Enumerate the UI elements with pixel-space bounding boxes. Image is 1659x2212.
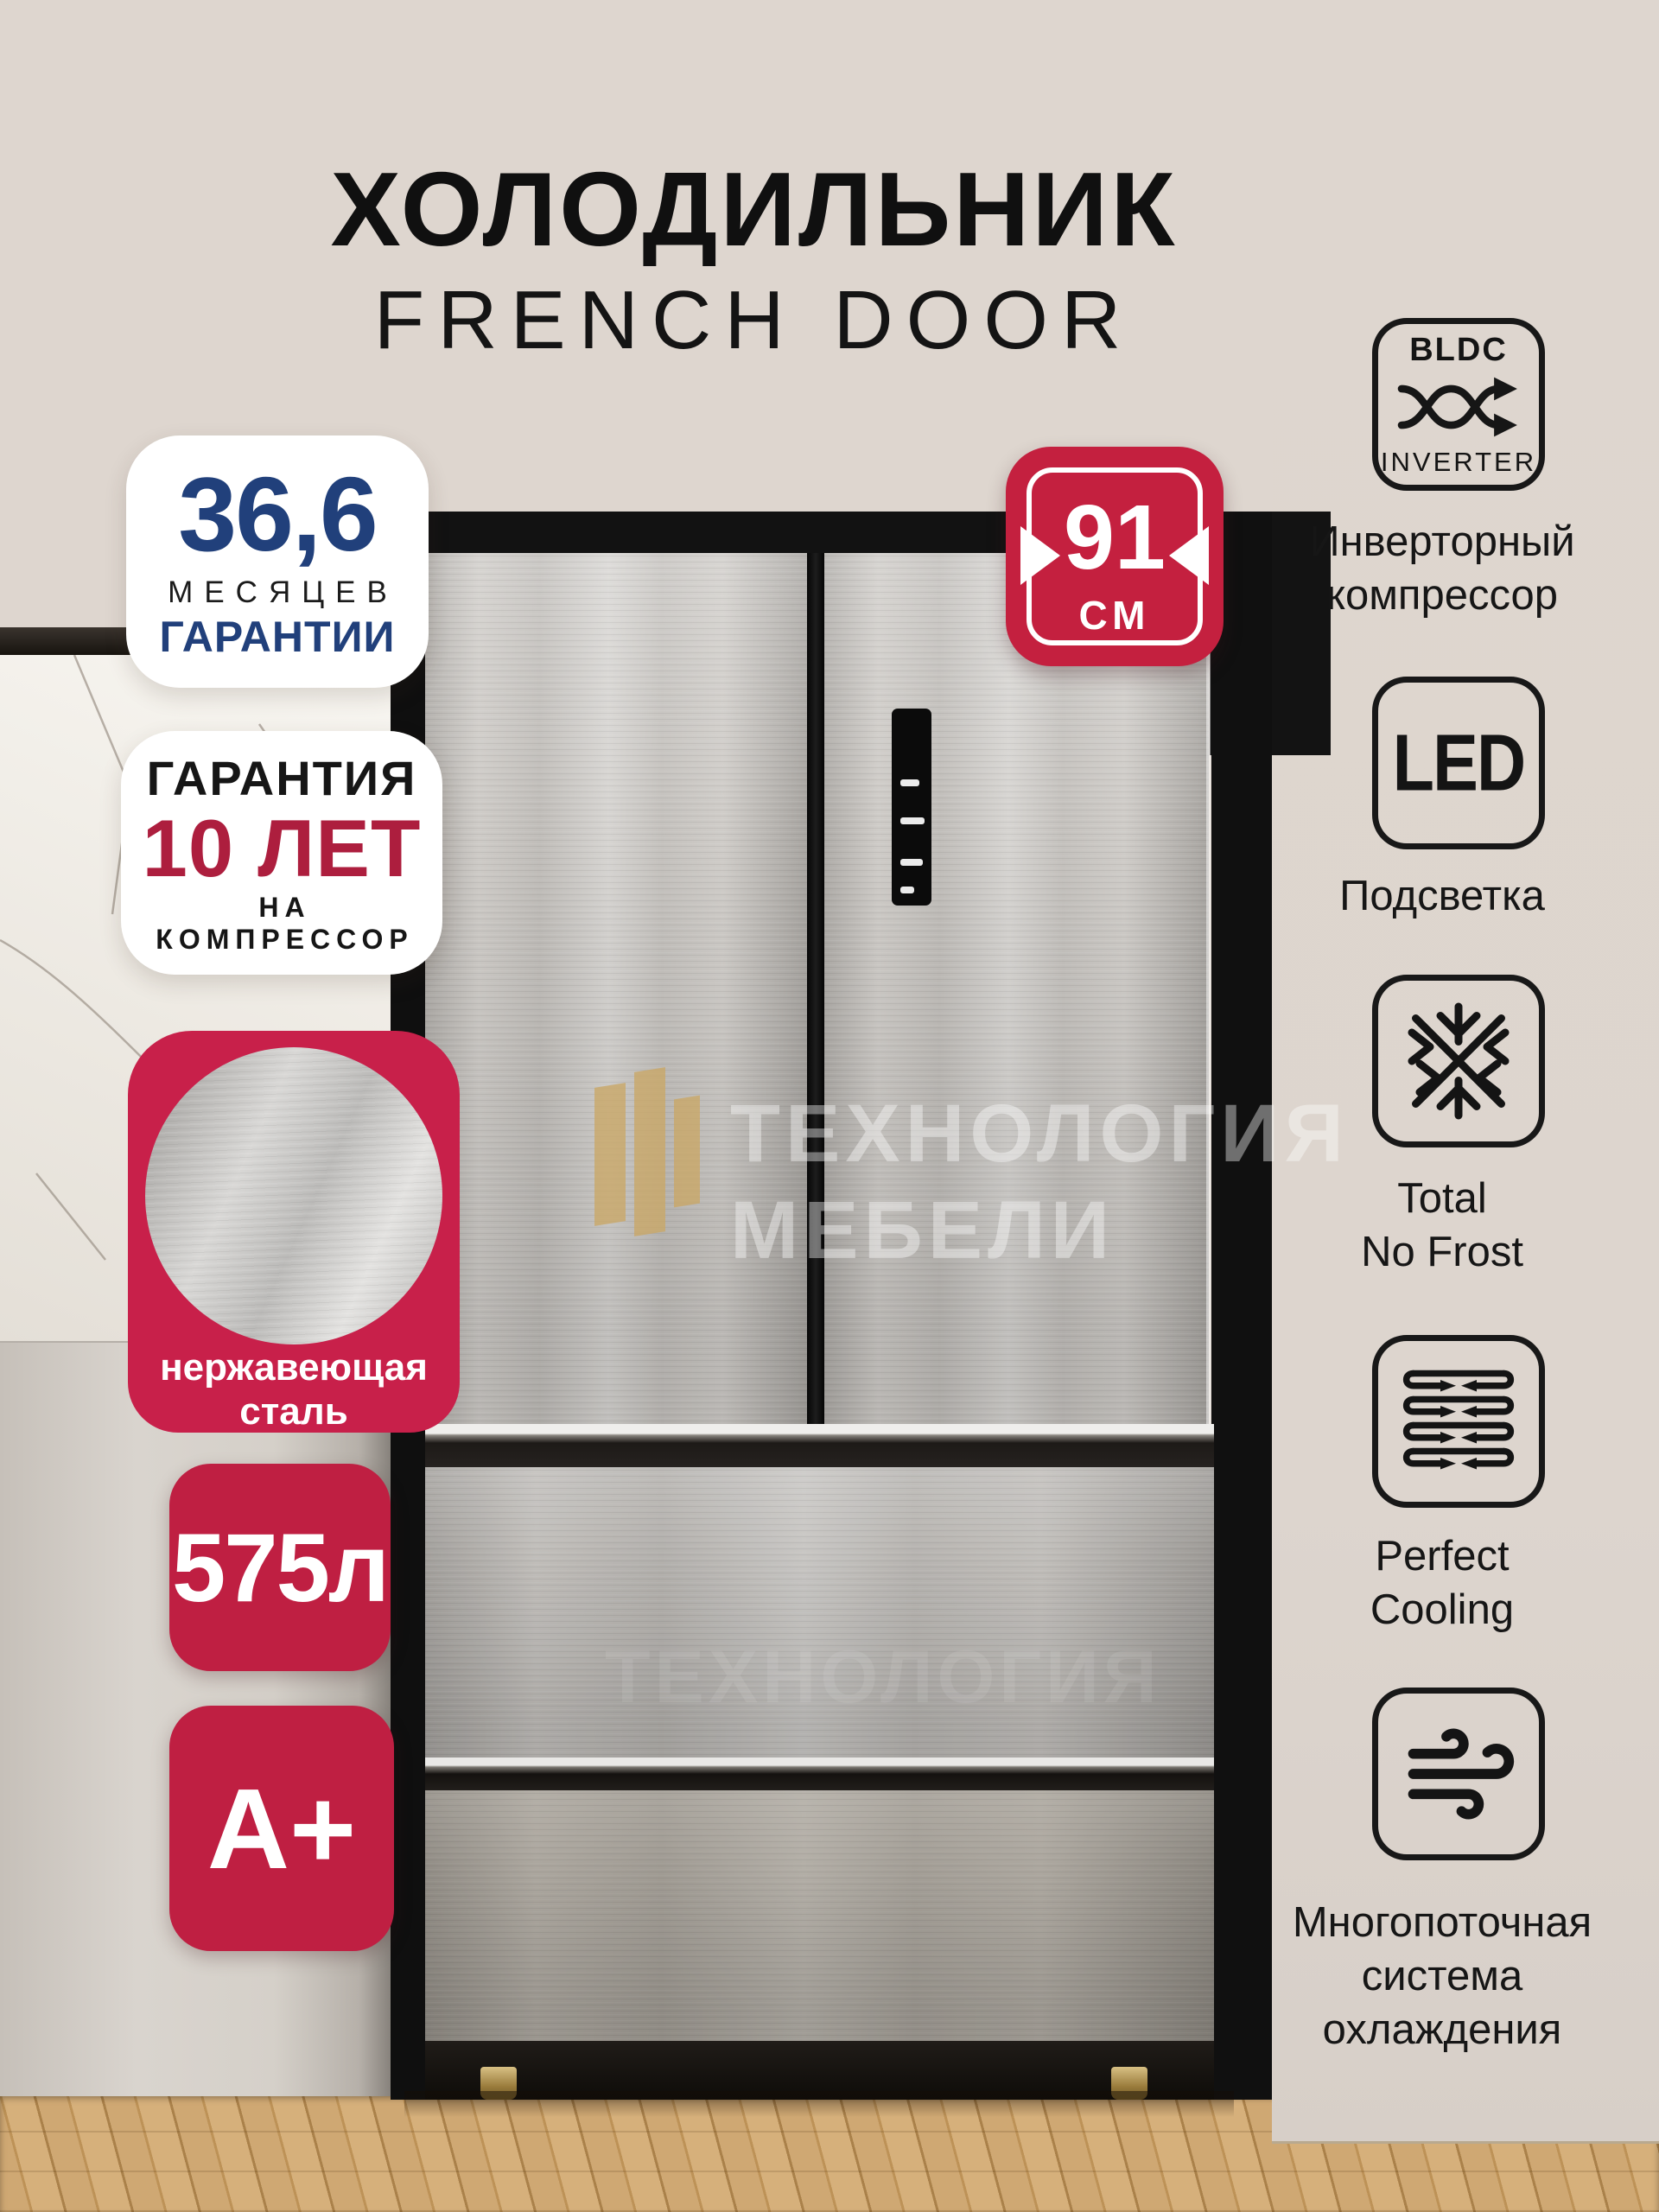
feature-label-nofrost: Total No Frost xyxy=(1225,1172,1659,1279)
feature-label-line: Многопоточная xyxy=(1225,1896,1659,1949)
watermark-line2: МЕБЕЛИ xyxy=(730,1184,1115,1278)
drawer-handle-recess-top xyxy=(425,1424,1214,1467)
alcove-right-frame xyxy=(1211,512,1272,2100)
freezer-drawer-bottom xyxy=(425,1790,1214,2041)
width-badge: 91 СМ xyxy=(1006,447,1224,666)
volume-badge: 575л xyxy=(169,1464,391,1671)
snowflake-glyph xyxy=(1394,996,1523,1126)
page-subtitle: FRENCH DOOR xyxy=(0,273,1508,368)
compressor-warranty-label: НА КОМПРЕССОР xyxy=(127,892,442,956)
fridge-right-door xyxy=(824,553,1209,1424)
bldc-icon-text-bottom: INVERTER xyxy=(1381,447,1536,478)
feature-label-line: Подсветка xyxy=(1225,869,1659,923)
watermark-faint: ТЕХНОЛОГИЯ xyxy=(605,1635,1161,1720)
warranty-months-unit: МЕСЯЦЕВ xyxy=(168,575,398,610)
control-panel-indicator xyxy=(900,817,925,824)
feature-label-line: Perfect xyxy=(1225,1529,1659,1583)
control-panel-indicator xyxy=(900,859,923,866)
brand-logo-icon xyxy=(594,1070,715,1243)
warranty-months-badge: 36,6 МЕСЯЦЕВ ГАРАНТИИ xyxy=(126,435,429,688)
air-circulation-glyph xyxy=(1394,1357,1523,1486)
material-label-line2: сталь xyxy=(128,1389,460,1433)
feature-label-line: система xyxy=(1225,1949,1659,2003)
stainless-steel-sample xyxy=(145,1047,442,1344)
led-icon: LED xyxy=(1372,677,1545,849)
fridge-left-door xyxy=(425,553,807,1424)
bldc-inverter-icon: BLDC INVERTER xyxy=(1372,318,1545,491)
feature-label-line: охлаждения xyxy=(1225,2003,1659,2056)
width-value: 91 xyxy=(1006,492,1224,583)
feature-label-line: No Frost xyxy=(1225,1225,1659,1279)
drawer-handle-recess-bottom xyxy=(425,1758,1214,1790)
product-card: ТЕХНОЛОГИЯ МЕБЕЛИ ТЕХНОЛОГИЯ ХОЛОДИЛЬНИК… xyxy=(0,0,1659,2212)
warranty-months-value: 36,6 xyxy=(178,461,376,567)
wind-glyph xyxy=(1398,1713,1519,1834)
compressor-warranty-title: ГАРАНТИЯ xyxy=(147,750,417,806)
fridge-door-edge-highlight xyxy=(1206,553,1211,1424)
energy-class-badge: A+ xyxy=(169,1706,394,1951)
feature-label-led: Подсветка xyxy=(1225,869,1659,923)
control-panel-indicator xyxy=(900,887,914,893)
fridge-door-gap xyxy=(807,553,824,1424)
control-panel-indicator xyxy=(900,779,919,786)
feature-label-multiflow: Многопоточная система охлаждения xyxy=(1225,1896,1659,2057)
feature-label-cooling: Perfect Cooling xyxy=(1225,1529,1659,1637)
feature-label-line: Cooling xyxy=(1225,1583,1659,1637)
snowflake-icon xyxy=(1372,975,1545,1147)
warranty-months-label: ГАРАНТИИ xyxy=(160,612,396,662)
compressor-warranty-value: 10 ЛЕТ xyxy=(143,806,422,892)
material-label-line1: нержавеющая xyxy=(128,1345,460,1389)
material-label: нержавеющая сталь xyxy=(128,1345,460,1433)
material-badge: нержавеющая сталь xyxy=(128,1031,460,1433)
air-circulation-icon xyxy=(1372,1335,1545,1508)
feature-label-line: компрессор xyxy=(1225,569,1659,622)
control-panel xyxy=(892,709,931,906)
fridge-floor-shadow xyxy=(404,2091,1234,2117)
bldc-icon-text-top: BLDC xyxy=(1409,332,1508,369)
watermark-line1: ТЕХНОЛОГИЯ xyxy=(730,1087,1349,1181)
page-title: ХОЛОДИЛЬНИК xyxy=(0,149,1508,270)
width-unit: СМ xyxy=(1006,592,1224,639)
feature-label-line: Инверторный xyxy=(1225,515,1659,569)
feature-label-line: Total xyxy=(1225,1172,1659,1225)
feature-label-inverter: Инверторный компрессор xyxy=(1225,515,1659,622)
led-icon-text: LED xyxy=(1393,717,1525,810)
compressor-warranty-badge: ГАРАНТИЯ 10 ЛЕТ НА КОМПРЕССОР xyxy=(121,731,442,975)
inverter-arrows-icon xyxy=(1394,369,1523,445)
wind-icon xyxy=(1372,1688,1545,1860)
